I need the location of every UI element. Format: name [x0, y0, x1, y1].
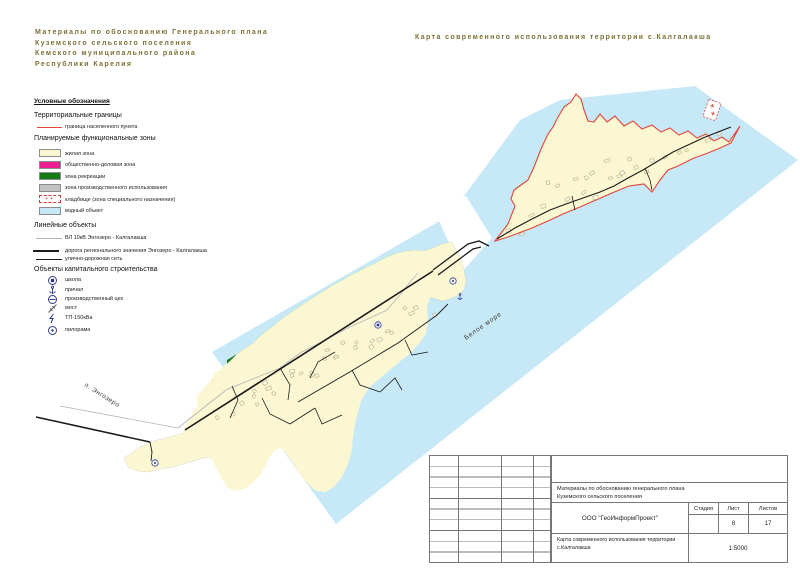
boundary-line-swatch [37, 127, 62, 128]
title-block-empty-row [552, 456, 787, 483]
legend-item-label: мост [65, 305, 77, 311]
legend-item-label: ВЛ 10кВ Энгозеро - Калгалакша [65, 235, 146, 241]
regional-road-swatch [33, 250, 59, 252]
map-title-header: Карта современного использования террито… [415, 33, 712, 44]
stage-column: Стадия [688, 503, 718, 533]
legend-item-label: жилая зона [65, 151, 94, 157]
legend-item-label: граница населенного пункта [65, 124, 137, 130]
settlement-label: п. Энгозеро [83, 382, 121, 409]
project-header-line: Республики Карелия [35, 60, 268, 71]
sheets-column: Листов 17 [748, 503, 787, 533]
legend-item-label: школа [65, 277, 81, 283]
project-header-line: Куземского сельского поселения [35, 39, 268, 50]
legend-section-borders: Территориальные границы [34, 112, 122, 119]
legend-item-label: общественно-деловая зона [65, 162, 135, 168]
legend-item-label: зона производственного использования [65, 185, 167, 191]
cemetery-swatch: ++ [39, 195, 61, 203]
legend-item-label: причал [65, 287, 83, 293]
legend-item-label: кладбище (зона специального назначения) [65, 197, 175, 203]
map-sheet: Белое море п. Энгозеро Материалы по обос… [0, 0, 800, 576]
legend-title: Условные обозначения [34, 98, 110, 105]
legend-item-label: зона рекреации [65, 174, 105, 180]
business-swatch [39, 161, 61, 169]
street-swatch [36, 259, 62, 260]
legend-section-zones: Планируемые функциональные зоны [34, 135, 156, 142]
scale-value: 1:5000 [688, 534, 787, 563]
legend-section-linear: Линейные объекты [34, 222, 96, 229]
title-block: Материалы по обоснованию генерального пл… [429, 455, 788, 563]
project-header: Материалы по обоснованию Генерального пл… [35, 28, 268, 71]
sheet-column: Лист 8 [718, 503, 748, 533]
title-block-map-title-row: Карта современного использования террито… [552, 534, 787, 563]
company-name: ООО "ГеоИнформПроект" [552, 503, 688, 533]
project-header-line: Кемского муниципального района [35, 49, 268, 60]
legend-item-label: улично-дорожная сеть [65, 256, 122, 262]
legend-item-label: производственный цех [65, 296, 123, 302]
title-block-project: Материалы по обоснованию генерального пл… [552, 483, 787, 503]
power-line-swatch [36, 238, 62, 239]
map-school-icon [375, 322, 381, 328]
legend-section-objects: Объекты капитального строительства [34, 266, 158, 273]
project-header-line: Материалы по обоснованию Генерального пл… [35, 28, 268, 39]
legend-item-label: ТП-150кВа [65, 315, 92, 321]
map-sawmill-icon [152, 460, 158, 466]
water-swatch [39, 207, 61, 215]
sheet-map-title: Карта современного использования террито… [552, 534, 688, 563]
industrial-swatch [39, 184, 61, 192]
recreation-swatch [39, 172, 61, 180]
map-workshop-icon [450, 278, 456, 284]
legend-item-label: дорога регионального значения Энгозеро -… [65, 248, 207, 254]
sawmill-icon [47, 325, 58, 336]
title-block-right: Материалы по обоснованию генерального пл… [551, 456, 787, 562]
legend-item-label: водный объект [65, 208, 103, 214]
transformer-icon [47, 313, 58, 324]
residential-swatch [39, 149, 61, 157]
legend-item-label: пилорама [65, 327, 90, 333]
title-block-company-row: ООО "ГеоИнформПроект" Стадия Лист 8 Лист… [552, 503, 787, 534]
